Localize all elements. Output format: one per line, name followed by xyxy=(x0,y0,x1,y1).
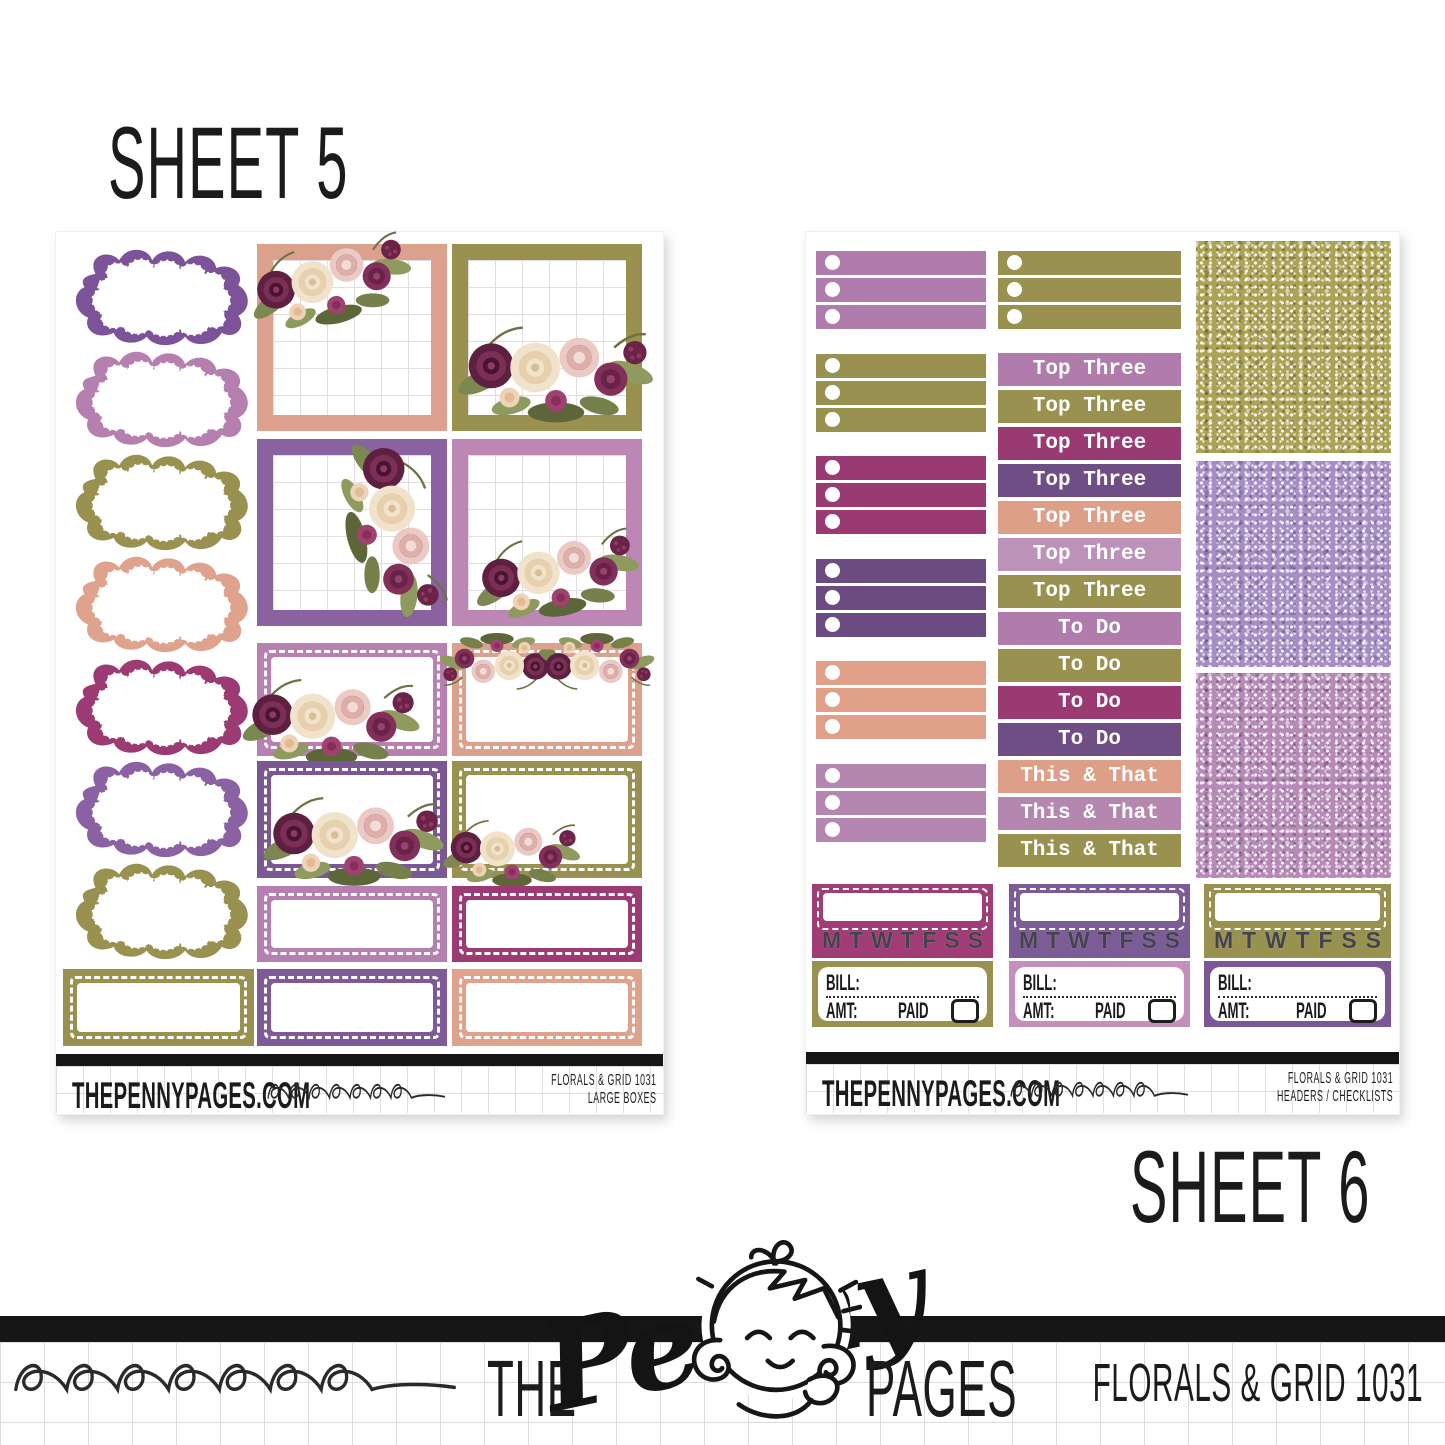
paid-label: PAID xyxy=(898,998,929,1024)
checklist-strip xyxy=(816,613,986,637)
half-box-sticker xyxy=(452,643,642,756)
half-box-sticker xyxy=(257,761,447,878)
header-sticker: Top Three xyxy=(998,575,1181,608)
bill-form: BILL: AMT: PAID xyxy=(818,967,987,1021)
grid-box-sticker xyxy=(257,439,447,626)
checklist-strip xyxy=(998,278,1181,302)
sheet5-footer: THEPENNYPAGES.COM FLORALS & GRID 1031 LA… xyxy=(56,1066,663,1113)
penny-girl-doodle xyxy=(684,1222,862,1445)
header-sticker: This & That xyxy=(998,834,1181,867)
amt-label: AMT: xyxy=(826,998,858,1024)
bill-label: BILL: xyxy=(826,970,860,996)
header-sticker: Top Three xyxy=(998,390,1181,423)
grid-box-sticker xyxy=(452,244,642,431)
bill-tracker-sticker: BILL: AMT: PAID xyxy=(1204,961,1391,1027)
date-cover-sticker: MTWTFSS xyxy=(812,884,993,958)
half-box-sticker xyxy=(257,643,447,756)
quarter-box-sticker xyxy=(257,886,447,962)
checklist-strip xyxy=(816,510,986,534)
footer-divider-bar xyxy=(56,1054,663,1066)
quarter-box-sticker xyxy=(452,969,642,1046)
checklist-strip xyxy=(816,661,986,685)
half-box-sticker xyxy=(452,761,642,878)
header-sticker: Top Three xyxy=(998,501,1181,534)
grid-box-sticker xyxy=(452,439,642,626)
brand-pages: PAGES xyxy=(866,1343,1017,1435)
checklist-strip xyxy=(816,408,986,432)
sheet5-paper: THEPENNYPAGES.COM FLORALS & GRID 1031 LA… xyxy=(55,231,664,1115)
checklist-strip xyxy=(816,381,986,405)
product-image: SHEET 5 SHEET 6 xyxy=(0,0,1445,1445)
header-sticker: Top Three xyxy=(998,464,1181,497)
squiggle-doodle-large xyxy=(8,1346,468,1408)
cloud-label-sticker xyxy=(68,351,251,450)
checklist-strip xyxy=(998,251,1181,275)
header-sticker: Top Three xyxy=(998,353,1181,386)
header-sticker: This & That xyxy=(998,760,1181,793)
flower-bouquet xyxy=(239,674,424,772)
header-sticker: To Do xyxy=(998,612,1181,645)
checklist-strip xyxy=(816,456,986,480)
header-sticker: This & That xyxy=(998,797,1181,830)
squiggle-doodle xyxy=(1008,1072,1193,1106)
checklist-strip xyxy=(816,483,986,507)
glitter-swatch-orchid xyxy=(1196,673,1391,878)
checklist-strip xyxy=(816,764,986,788)
checklist-strip xyxy=(816,278,986,302)
product-subname: LARGE BOXES xyxy=(552,1090,657,1108)
checklist-strip xyxy=(816,715,986,739)
flower-bouquet xyxy=(259,792,449,892)
cloud-label-sticker xyxy=(68,249,251,348)
header-label: Top Three xyxy=(1033,358,1146,381)
quarter-box-sticker xyxy=(452,886,642,962)
cloud-label-sticker xyxy=(68,556,251,655)
header-sticker: Top Three xyxy=(998,538,1181,571)
flower-bouquet xyxy=(442,816,582,892)
checklist-strip xyxy=(816,688,986,712)
squiggle-doodle xyxy=(265,1074,450,1108)
checklist-strip xyxy=(816,559,986,583)
product-label: FLORALS & GRID 1031 HEADERS / CHECKLISTS xyxy=(1277,1070,1393,1105)
label-box-sticker xyxy=(63,969,254,1046)
sheet5-title: SHEET 5 xyxy=(108,112,349,214)
sheet6-title: SHEET 6 xyxy=(1130,1136,1371,1238)
grid-box-sticker xyxy=(257,244,447,431)
checklist-strip xyxy=(816,354,986,378)
glitter-swatch-olive xyxy=(1196,241,1391,453)
checklist-strip xyxy=(816,251,986,275)
checklist-strip xyxy=(816,586,986,610)
glitter-swatch-lavender xyxy=(1196,461,1391,667)
header-sticker: To Do xyxy=(998,686,1181,719)
header-sticker: To Do xyxy=(998,723,1181,756)
sheet6-footer: THEPENNYPAGES.COM FLORALS & GRID 1031 HE… xyxy=(806,1064,1399,1113)
bullet-dot xyxy=(825,255,840,270)
date-cover-sticker: MTWTFSS xyxy=(1204,884,1391,958)
header-sticker: Top Three xyxy=(998,427,1181,460)
checklist-strip xyxy=(816,818,986,842)
bill-tracker-sticker: BILL: AMT: PAID xyxy=(1009,961,1190,1027)
flower-bouquet xyxy=(538,629,656,693)
cloud-label-sticker xyxy=(68,659,251,758)
product-name: FLORALS & GRID 1031 xyxy=(1277,1070,1393,1088)
checklist-strip xyxy=(816,305,986,329)
quarter-box-sticker xyxy=(257,969,447,1046)
date-cover-sticker: MTWTFSS xyxy=(1009,884,1190,958)
product-name: FLORALS & GRID 1031 xyxy=(552,1072,657,1090)
header-sticker: To Do xyxy=(998,649,1181,682)
cloud-label-sticker xyxy=(68,761,251,860)
sheet6-paper: Top Three Top Three Top Three Top Three … xyxy=(805,231,1400,1115)
product-label: FLORALS & GRID 1031 LARGE BOXES xyxy=(552,1072,657,1107)
weekday-letters: MTWTFSS xyxy=(822,927,983,954)
cloud-label-sticker xyxy=(68,863,251,962)
checklist-strip xyxy=(816,791,986,815)
cloud-label-sticker xyxy=(68,454,251,553)
flower-bouquet xyxy=(456,321,656,429)
bill-tracker-sticker: BILL: AMT: PAID xyxy=(812,961,993,1027)
product-subname: HEADERS / CHECKLISTS xyxy=(1277,1088,1393,1106)
paid-checkbox xyxy=(951,999,979,1023)
checklist-strip xyxy=(998,305,1181,329)
date-write-in xyxy=(823,893,982,921)
write-in-area xyxy=(77,983,240,1032)
footer-product-name: FLORALS & GRID 1031 xyxy=(1092,1352,1423,1414)
footer-divider-bar xyxy=(806,1052,1399,1064)
